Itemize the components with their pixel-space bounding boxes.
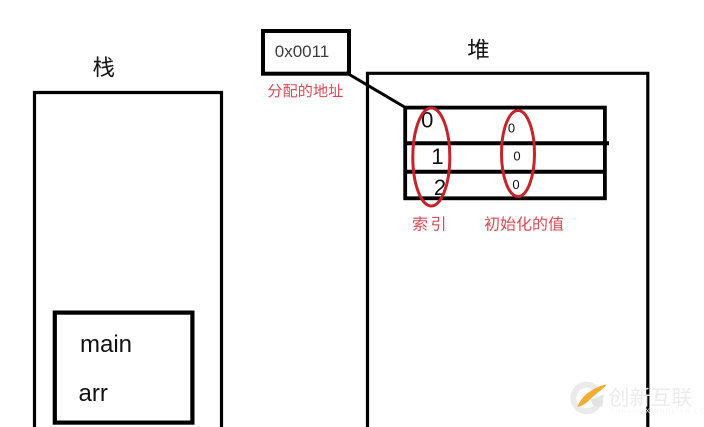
- svg-text:0: 0: [513, 149, 520, 164]
- svg-text:0: 0: [508, 120, 515, 135]
- svg-text:main: main: [80, 331, 132, 358]
- svg-text:CHUANGXINHULIAN.COM: CHUANGXINHULIAN.COM: [610, 408, 704, 415]
- svg-text:0x0011: 0x0011: [275, 42, 330, 61]
- svg-text:2: 2: [434, 175, 446, 200]
- svg-text:1: 1: [431, 144, 443, 169]
- svg-text:0: 0: [512, 177, 519, 192]
- svg-text:arr: arr: [79, 380, 108, 407]
